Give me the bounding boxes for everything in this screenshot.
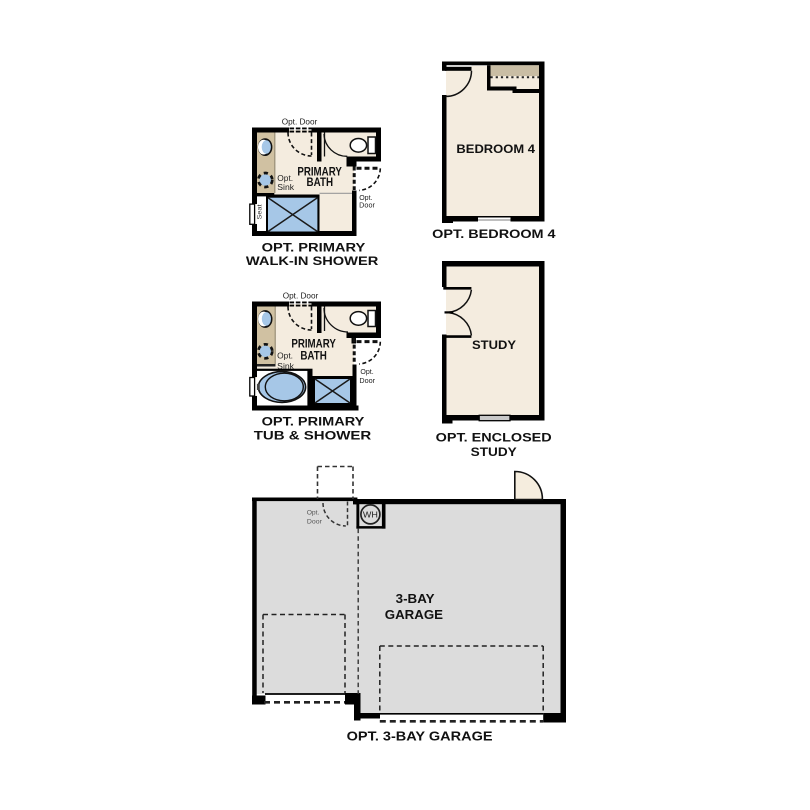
svg-text:Seat: Seat <box>257 204 264 219</box>
svg-text:PRIMARY: PRIMARY <box>291 338 336 350</box>
svg-text:Opt.: Opt. <box>277 174 293 183</box>
svg-text:BEDROOM 4: BEDROOM 4 <box>456 144 535 156</box>
svg-text:OPT. ENCLOSED: OPT. ENCLOSED <box>436 431 552 445</box>
svg-text:BATH: BATH <box>307 177 334 189</box>
svg-text:STUDY: STUDY <box>472 340 516 352</box>
svg-text:Opt. Door: Opt. Door <box>283 291 319 300</box>
svg-text:TUB & SHOWER: TUB & SHOWER <box>254 428 372 442</box>
svg-text:WH: WH <box>363 510 378 520</box>
svg-text:OPT. BEDROOM 4: OPT. BEDROOM 4 <box>432 227 556 241</box>
svg-text:WALK-IN SHOWER: WALK-IN SHOWER <box>246 254 378 268</box>
svg-text:3-BAY: 3-BAY <box>396 592 436 606</box>
svg-text:Opt.: Opt. <box>307 509 320 516</box>
svg-text:Sink: Sink <box>277 183 295 192</box>
svg-text:Door: Door <box>307 519 323 526</box>
svg-text:OPT. PRIMARY: OPT. PRIMARY <box>262 240 367 254</box>
svg-text:OPT. 3-BAY GARAGE: OPT. 3-BAY GARAGE <box>347 729 493 743</box>
svg-text:BATH: BATH <box>300 350 327 362</box>
svg-text:Opt. Door: Opt. Door <box>282 118 318 127</box>
svg-text:Opt.: Opt. <box>277 351 293 360</box>
svg-text:GARAGE: GARAGE <box>385 608 443 622</box>
svg-text:Door: Door <box>359 376 375 385</box>
svg-text:Sink: Sink <box>277 362 295 371</box>
svg-text:STUDY: STUDY <box>471 445 518 459</box>
svg-text:Opt.: Opt. <box>360 367 373 376</box>
svg-text:OPT. PRIMARY: OPT. PRIMARY <box>262 414 366 428</box>
svg-text:Door: Door <box>359 201 375 210</box>
